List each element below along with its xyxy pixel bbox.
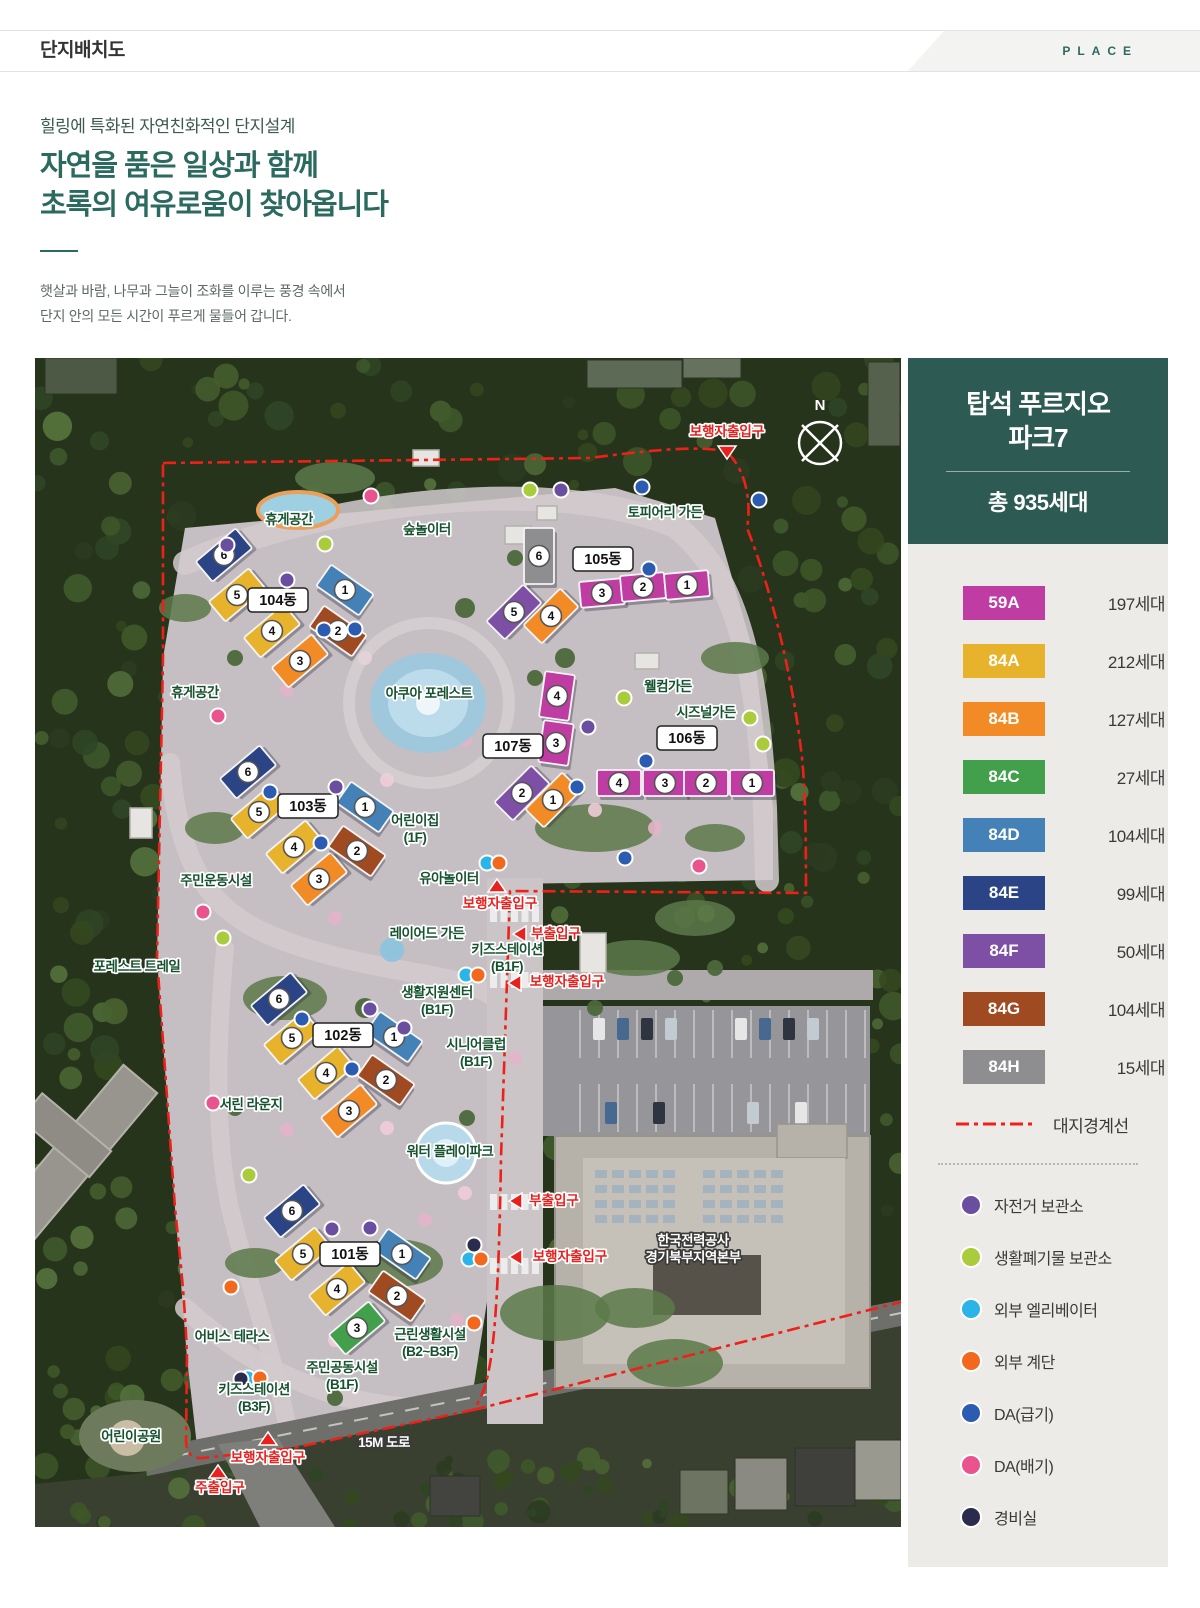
svg-text:어린이공원: 어린이공원 [101,1428,161,1444]
svg-text:웰컴가든: 웰컴가든 [644,679,692,694]
unit-number: 6 [245,765,252,779]
unit-number: 2 [394,1289,401,1303]
unit-type-chip: 84E [963,876,1045,910]
unit-type-count: 197세대 [1045,590,1165,615]
unit-number: 2 [519,786,526,800]
unit-number: 1 [342,583,349,597]
intro-body-line2: 단지 안의 모든 시간이 푸르게 물들어 갑니다. [40,308,292,324]
unit-type-count: 104세대 [1045,822,1165,847]
unit-number: 2 [383,1073,390,1087]
unit-type-row: 84F50세대 [963,934,1168,968]
facility-row: DA(배기) [960,1453,1168,1477]
da_supply-map-dot [348,622,363,637]
amenity-label: 휴게공간 [265,511,314,527]
svg-text:레이어드 가든: 레이어드 가든 [390,925,465,941]
unit-number: 6 [276,992,283,1006]
svg-text:근린생활시설: 근린생활시설 [394,1326,466,1342]
unit-number: 4 [554,689,561,703]
svg-text:시니어클럽: 시니어클럽 [446,1036,506,1052]
facility-label: 외부 엘리베이터 [994,1297,1098,1321]
unit-number: 1 [362,800,369,814]
unit-number: 4 [323,1066,330,1080]
building-label: 101동 [331,1246,369,1263]
guard-dot-icon [960,1506,982,1528]
svg-text:주출입구: 주출입구 [195,1479,245,1495]
svg-text:어린이집: 어린이집 [391,812,439,828]
unit-type-count: 127세대 [1045,706,1165,731]
da_supply-map-dot [317,623,332,638]
unit-type-count: 50세대 [1045,938,1165,963]
svg-text:(B1F): (B1F) [491,959,523,974]
da_exhaust-map-dot [206,1096,221,1111]
facility-row: DA(급기) [960,1401,1168,1425]
amenity-label: 시즈널가든 [676,705,736,720]
boundary-legend-row: 대지경계선 [955,1112,1168,1137]
svg-text:부출입구: 부출입구 [529,1192,579,1208]
amenity-label: 어린이공원 [101,1428,161,1444]
svg-text:유아놀이터: 유아놀이터 [419,870,479,886]
svg-text:키즈스테이션: 키즈스테이션 [218,1381,290,1397]
unit-number: 3 [346,1104,353,1118]
da_supply-map-dot [642,562,657,577]
da_supply-dot-icon [960,1402,982,1424]
building-label: 102동 [324,1027,362,1044]
da_supply-map-dot [752,493,767,508]
intro-headline-line1: 자연을 품은 일상과 함께 [40,150,318,182]
building-label: 104동 [259,592,297,609]
parking-lot [543,1006,870,1136]
facility-legend: 자전거 보관소생활폐기물 보관소외부 엘리베이터외부 계단DA(급기)DA(배기… [908,1193,1168,1529]
bike-map-dot [220,538,235,553]
amenity-label: 웰컴가든 [644,679,692,694]
amenity-label: 토피어리 가든 [628,504,703,520]
unit-type-chip: 84H [963,1050,1045,1084]
total-households: 총 935세대 [908,485,1168,517]
amenity-label: 포레스트 트레일 [94,959,181,974]
unit-type-row: 84D104세대 [963,818,1168,852]
facility-label: 외부 계단 [994,1349,1055,1373]
unit-number: 3 [297,654,304,668]
amenity-label: 유아놀이터 [419,870,479,886]
stairs-map-dot [471,968,486,983]
intro-body-line1: 햇살과 바람, 나무과 그늘이 조화를 이루는 풍경 속에서 [40,283,345,299]
unit-type-chip: 84B [963,702,1045,736]
bike-map-dot [280,573,295,588]
amenity-label: 아쿠아 포레스트 [386,685,474,701]
svg-text:휴게공간: 휴게공간 [265,511,314,527]
unit-number: 2 [640,580,647,594]
svg-text:(B3F): (B3F) [238,1399,270,1414]
unit-number: 5 [511,605,518,619]
svg-text:보행자출입구: 보행자출입구 [231,1449,306,1465]
facility-row: 외부 엘리베이터 [960,1297,1168,1321]
unit-number: 4 [334,1282,341,1296]
building-label: 107동 [494,738,532,755]
unit-number: 3 [599,586,606,600]
svg-text:숲놀이터: 숲놀이터 [403,521,451,537]
amenity-label: 서린 라운지 [220,1096,283,1112]
unit-number: 2 [335,624,342,638]
unit-number: 4 [616,776,623,790]
svg-text:어비스 테라스: 어비스 테라스 [195,1328,271,1344]
amenity-label: 어비스 테라스 [195,1328,271,1344]
unit-number: 5 [256,805,263,819]
facility-row: 외부 계단 [960,1349,1168,1373]
facility-label: 생활폐기물 보관소 [994,1245,1112,1269]
intro-section: 힐링에 특화된 자연친화적인 단지설계 자연을 품은 일상과 함께 초록의 여유… [40,112,1160,328]
svg-text:키즈스테이션: 키즈스테이션 [471,941,543,957]
unit-number: 4 [291,840,298,854]
waste-map-dot [318,537,333,552]
bike-map-dot [329,780,344,795]
svg-text:부출입구: 부출입구 [531,925,581,941]
unit-type-chip: 84F [963,934,1045,968]
entrance-부출입구: 부출입구 [513,925,581,942]
site-plan-map: 654312104동654321105동4321106동4321107동6543… [35,358,901,1527]
elevator-dot-icon [960,1298,982,1320]
unit-type-row: 84E99세대 [963,876,1168,910]
legend-separator [938,1163,1138,1165]
unit-type-chip: 84C [963,760,1045,794]
guard-map-dot [467,1238,482,1253]
svg-text:(B2~B3F): (B2~B3F) [402,1344,458,1359]
waste-map-dot [242,1168,257,1183]
waste-map-dot [756,737,771,752]
unit-number: 3 [662,776,669,790]
da_supply-map-dot [345,1062,360,1077]
bike-map-dot [325,1222,340,1237]
unit-type-legend: 59A197세대84A212세대84B127세대84C27세대84D104세대8… [908,586,1168,1084]
site-plan-map-container: 654312104동654321105동4321106동4321107동6543… [35,358,901,1527]
waste-map-dot [743,711,758,726]
unit-number: 3 [354,1321,361,1335]
facility-row: 자전거 보관소 [960,1193,1168,1217]
stairs-map-dot [224,1280,239,1295]
amenity-label: 휴게공간 [171,684,220,700]
svg-text:생활지원센터: 생활지원센터 [401,984,473,1000]
da_exhaust-map-dot [196,905,211,920]
stairs-map-dot [467,1316,482,1331]
unit-type-chip: 84A [963,644,1045,678]
legend-panel: 59A197세대84A212세대84B127세대84C27세대84D104세대8… [908,544,1168,1567]
unit-type-chip: 84D [963,818,1045,852]
bike-dot-icon [960,1194,982,1216]
unit-number: 5 [234,588,241,602]
waste-map-dot [216,931,231,946]
da_exhaust-map-dot [211,709,226,724]
unit-number: 3 [553,736,560,750]
stairs-map-dot [474,1252,489,1267]
section-tag-band: PLACE [908,31,1200,71]
svg-text:포레스트 트레일: 포레스트 트레일 [94,959,181,974]
da_exhaust-dot-icon [960,1454,982,1476]
facility-label: 자전거 보관소 [994,1193,1083,1217]
unit-type-count: 104세대 [1045,996,1165,1021]
svg-text:주민공동시설: 주민공동시설 [306,1359,378,1375]
panel-divider [946,471,1130,472]
section-tag: PLACE [1062,44,1138,58]
da_supply-map-dot [635,480,650,495]
boundary-legend-label: 대지경계선 [1053,1112,1129,1137]
svg-text:(B1F): (B1F) [326,1377,358,1392]
svg-text:보행자출입구: 보행자출입구 [533,1248,608,1264]
project-title-panel: 탑석 푸르지오 파크7 총 935세대 [908,358,1168,544]
amenity-label: 워터 플레이파크 [407,1143,494,1159]
svg-text:보행자출입구: 보행자출입구 [690,423,765,439]
intro-headline: 자연을 품은 일상과 함께 초록의 여유로움이 찾아옵니다 [40,147,1160,224]
unit-type-row: 84C27세대 [963,760,1168,794]
stairs-dot-icon [960,1350,982,1372]
unit-type-row: 84G104세대 [963,992,1168,1026]
site-label: 15M 도로 [358,1435,411,1450]
intro-divider [40,250,78,252]
unit-type-row: 84B127세대 [963,702,1168,736]
unit-type-chip: 59A [963,586,1045,620]
compass-north-label: N [815,397,826,414]
facility-label: 경비실 [994,1505,1037,1529]
svg-text:보행자출입구: 보행자출입구 [463,895,538,911]
svg-text:휴게공간: 휴게공간 [171,684,220,700]
waste-map-dot [617,691,632,706]
bike-map-dot [363,1002,378,1017]
svg-text:주민운동시설: 주민운동시설 [180,872,252,888]
waste-dot-icon [960,1246,982,1268]
boundary-line-sample [955,1121,1037,1127]
intro-body: 햇살과 바람, 나무과 그늘이 조화를 이루는 풍경 속에서 단지 안의 모든 … [40,279,1160,328]
svg-text:아쿠아 포레스트: 아쿠아 포레스트 [386,685,474,701]
entrance-부출입구: 부출입구 [509,1192,579,1209]
amenity-label: 주민운동시설 [180,872,252,888]
da_supply-map-dot [263,785,278,800]
unit-number: 3 [316,872,323,886]
amenity-label: 레이어드 가든 [390,925,465,941]
unit-type-count: 99세대 [1045,880,1165,905]
unit-number: 2 [354,844,361,858]
main-content: 654312104동654321105동4321106동4321107동6543… [35,358,1200,1567]
unit-number: 1 [399,1247,406,1261]
bike-map-dot [581,720,596,735]
da_exhaust-map-dot [364,489,379,504]
unit-type-chip: 84G [963,992,1045,1026]
page-title: 단지배치도 [40,31,125,71]
stairs-map-dot [492,856,507,871]
svg-text:15M 도로: 15M 도로 [358,1435,411,1450]
bike-map-dot [397,1021,412,1036]
bike-map-dot [554,483,569,498]
unit-number: 1 [749,776,756,790]
unit-number: 4 [269,624,276,638]
facility-label: DA(배기) [994,1453,1053,1477]
da_supply-map-dot [295,1012,310,1027]
building-label: 105동 [584,551,622,568]
da_supply-map-dot [618,851,633,866]
svg-text:한국전력공사: 한국전력공사 [657,1232,730,1248]
project-title: 탑석 푸르지오 파크7 [908,388,1168,456]
da_supply-map-dot [639,754,654,769]
intro-headline-line2: 초록의 여유로움이 찾아옵니다 [40,189,388,221]
page-header: 단지배치도 PLACE [0,30,1200,72]
intro-eyebrow: 힐링에 특화된 자연친화적인 단지설계 [40,112,1160,137]
svg-text:보행자출입구: 보행자출입구 [530,973,605,989]
legend-sidebar: 탑석 푸르지오 파크7 총 935세대 59A197세대84A212세대84B1… [908,358,1168,1567]
unit-type-count: 27세대 [1045,764,1165,789]
svg-text:토피어리 가든: 토피어리 가든 [628,504,703,520]
da_supply-map-dot [314,836,329,851]
unit-number: 5 [289,1031,296,1045]
svg-text:시즈널가든: 시즈널가든 [676,705,736,720]
unit-number: 6 [289,1204,296,1218]
da_supply-map-dot [570,780,585,795]
unit-number: 1 [550,793,557,807]
building-label: 106동 [668,730,706,747]
unit-number: 1 [684,578,691,592]
svg-text:워터 플레이파크: 워터 플레이파크 [407,1143,494,1159]
project-title-line1: 탑석 푸르지오 [966,389,1110,419]
svg-text:서린 라운지: 서린 라운지 [220,1096,283,1112]
svg-text:(1F): (1F) [404,830,427,845]
facility-row: 경비실 [960,1505,1168,1529]
building-label: 103동 [289,798,327,815]
unit-number: 4 [548,609,555,623]
unit-number: 6 [536,549,543,563]
unit-number: 2 [703,776,710,790]
amenity-label: 숲놀이터 [403,521,451,537]
unit-type-row: 84A212세대 [963,644,1168,678]
facility-label: DA(급기) [994,1401,1053,1425]
unit-type-count: 15세대 [1045,1054,1165,1079]
svg-text:(B1F): (B1F) [421,1002,453,1017]
facility-row: 생활폐기물 보관소 [960,1245,1168,1269]
project-title-line2: 파크7 [1008,423,1067,453]
unit-type-row: 59A197세대 [963,586,1168,620]
unit-number: 5 [300,1247,307,1261]
svg-text:경기북부지역본부: 경기북부지역본부 [645,1249,741,1265]
da_exhaust-map-dot [692,859,707,874]
unit-type-row: 84H15세대 [963,1050,1168,1084]
svg-text:(B1F): (B1F) [460,1054,492,1069]
bike-map-dot [363,1221,378,1236]
unit-type-count: 212세대 [1045,648,1165,673]
waste-map-dot [523,483,538,498]
